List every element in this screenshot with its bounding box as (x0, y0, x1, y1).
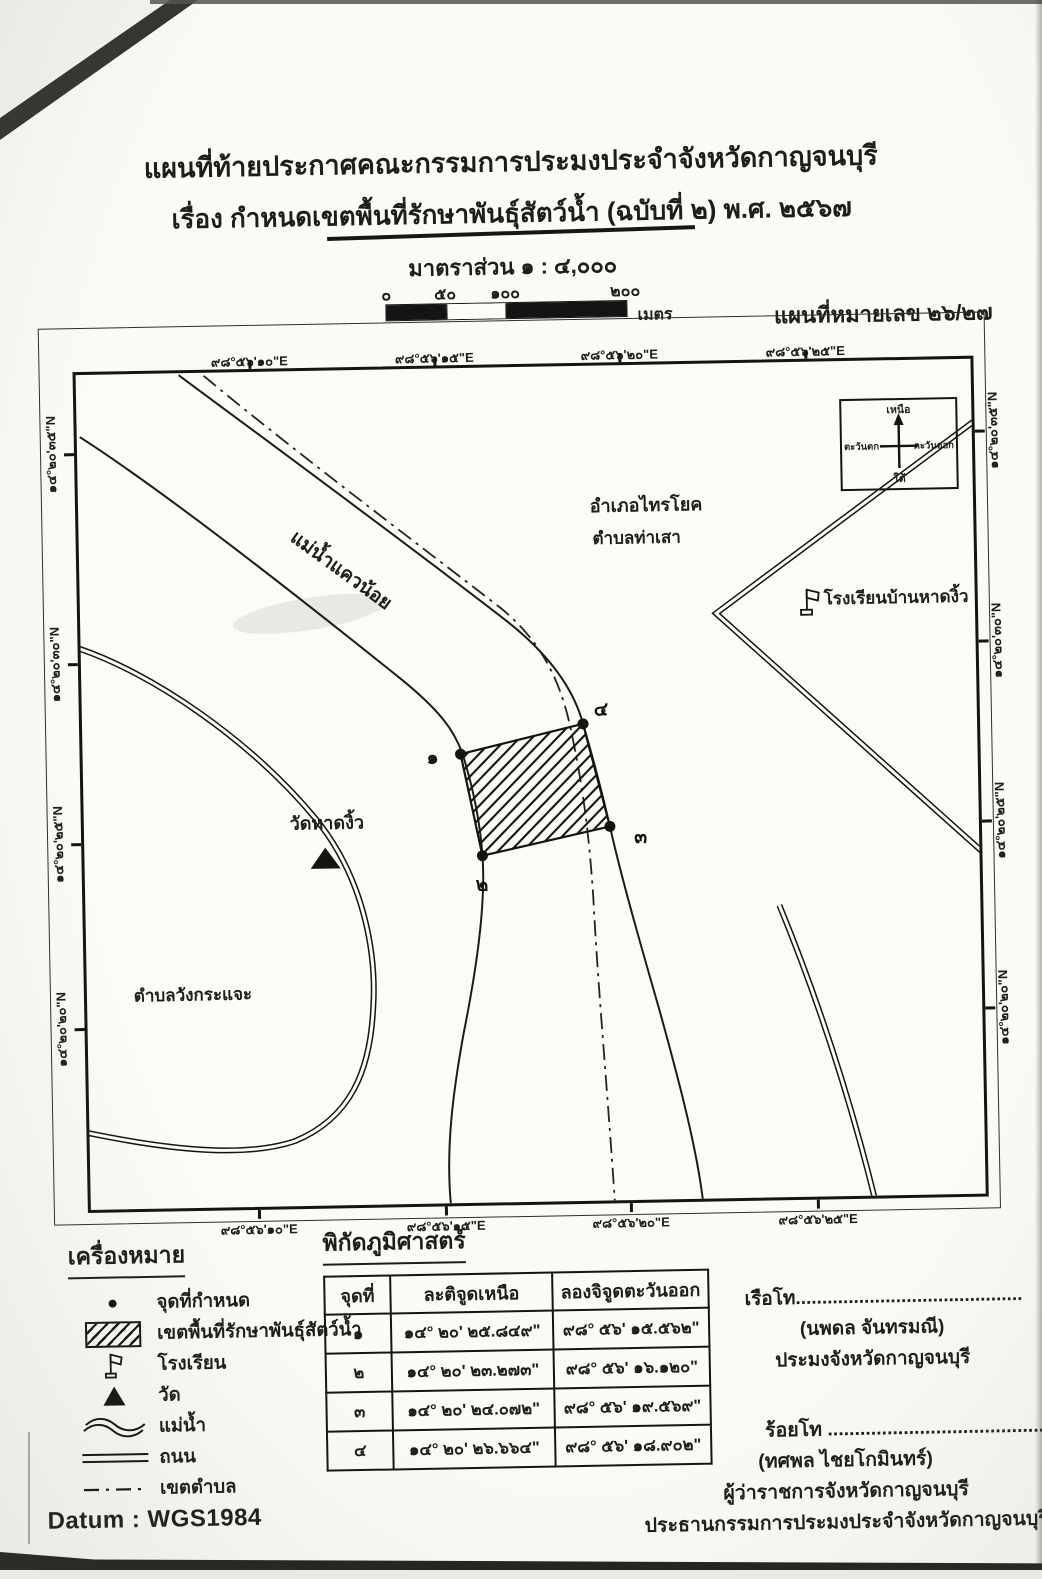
compass-north-label: เหนือ (886, 401, 910, 418)
tick-top-1 (248, 360, 251, 369)
title-block: แผนที่ท้ายประกาศคณะกรรมการประมงประจำจังห… (0, 131, 1033, 244)
signature-title: ประมงจังหวัดกาญจนบุรี (711, 1341, 1034, 1378)
subdistrict-wang-label: ตำบลวังกระแจะ (134, 980, 253, 1009)
col-header-lon: ลองจิจูดตะวันออก (552, 1270, 709, 1311)
coord-label-left-3: ๑๔°๒๐'๒๕"N (47, 806, 69, 883)
cell-point: ๔ (327, 1430, 394, 1470)
scan-edge-top (150, 0, 1042, 4)
cell-lat: ๑๔° ๒๐' ๒๔.๐๗๒" (392, 1389, 555, 1431)
legend-item-school: โรงเรียน (69, 1345, 340, 1381)
legend: เครื่องหมาย จุดที่กำหนด เขตพื้นที่รักษาพ… (67, 1234, 342, 1505)
legend-item-label: วัด (158, 1380, 181, 1409)
temple-triangle-icon (103, 1386, 125, 1405)
col-header-point: จุดที่ (324, 1275, 391, 1314)
compass-south-label: ใต้ (893, 470, 905, 487)
hatched-area-icon (85, 1321, 141, 1348)
legend-item-temple: วัด (70, 1376, 341, 1412)
school-label: โรงเรียนบ้านหาดงิ้ว (824, 583, 969, 613)
scanned-page: แผนที่ท้ายประกาศคณะกรรมการประมงประจำจังห… (0, 0, 1042, 1570)
tick-right-1 (975, 429, 985, 432)
cell-lat: ๑๔° ๒๐' ๒๖.๖๖๔" (393, 1427, 556, 1469)
legend-item-boundary: เขตตำบล (72, 1469, 343, 1505)
signature-block-governor: ร้อยโท .................................… (635, 1410, 1042, 1542)
coord-label-right-1: ๑๔°๒๐'๓๕"N (982, 392, 1004, 470)
cell-point: ๑ (325, 1313, 392, 1353)
tick-left-4 (75, 1028, 85, 1031)
legend-item-river: แม่น้ำ (71, 1407, 342, 1443)
scan-paper-edge-line (28, 1432, 30, 1544)
signature-dotted-line: ........................................… (827, 1414, 1042, 1440)
tick-bottom-4 (817, 1200, 820, 1209)
map-inner-frame: ๑ ๒ ๓ ๔ อำเภอไทรโยค ตำบลท่าเสา (73, 356, 989, 1213)
tick-top-3 (618, 353, 621, 362)
legend-item-road: ถนน (71, 1438, 342, 1474)
coord-label-bottom-4: ๙๘°๕๖'๒๕"E (778, 1208, 858, 1230)
signature-dotted-line: ........................................… (795, 1284, 1022, 1309)
tick-right-4 (985, 1006, 995, 1009)
legend-item-protected-area: เขตพื้นที่รักษาพันธุ์สัตว์น้ำ (69, 1314, 340, 1350)
coord-label-left-4: ๑๔°๒๐'๒๐"N (50, 992, 72, 1067)
signature-rank: ร้อยโท (765, 1419, 828, 1442)
point-1-label: ๑ (426, 748, 438, 769)
title-line-1: แผนที่ท้ายประกาศคณะกรรมการประมงประจำจังห… (0, 131, 1032, 193)
legend-item-label: ถนน (159, 1442, 196, 1472)
district-label: อำเภอไทรโยค (589, 489, 702, 520)
school-flag-icon (801, 590, 819, 615)
tick-bottom-1 (258, 1210, 261, 1219)
coord-label-right-2: ๑๔°๒๐'๓๐"N (985, 602, 1007, 678)
legend-heading: เครื่องหมาย (67, 1237, 185, 1279)
tick-top-4 (804, 350, 807, 359)
cell-point: ๒ (326, 1352, 393, 1392)
compass-west-label: ตะวันตก (844, 439, 879, 455)
signature-block-fisheries: เรือโท..................................… (710, 1279, 1034, 1378)
point-2-label: ๒ (476, 875, 489, 896)
cell-lon: ๙๘° ๕๖' ๑๕.๕๖๒" (553, 1308, 710, 1350)
tick-top-2 (433, 357, 436, 366)
datum-label: Datum : WGS1984 (47, 1504, 262, 1536)
point-dot-icon (109, 1299, 117, 1307)
point-4-label: ๔ (594, 699, 609, 720)
tick-left-2 (68, 663, 78, 666)
coord-label-left-1: ๑๔°๒๐'๓๕"N (40, 416, 62, 494)
cell-lat: ๑๔° ๒๐' ๒๓.๒๗๓" (392, 1350, 555, 1392)
river-waves-icon (81, 1414, 149, 1439)
subdistrict-thasao-label: ตำบลท่าเสา (592, 524, 681, 553)
scan-edge-right (1035, 0, 1042, 1570)
tick-left-1 (64, 453, 74, 456)
tick-right-3 (982, 819, 992, 822)
scale-bar-segment-black-2 (506, 301, 626, 318)
tick-bottom-2 (445, 1206, 448, 1215)
cell-point: ๓ (326, 1391, 393, 1431)
signature-rank: เรือโท (744, 1288, 795, 1310)
coord-label-right-3: ๑๔°๒๐'๒๕"N (989, 782, 1011, 859)
cell-lat: ๑๔° ๒๐' ๒๕.๘๔๙" (391, 1311, 554, 1353)
col-header-lat: ละติจูดเหนือ (390, 1273, 553, 1314)
tick-right-2 (979, 639, 989, 642)
coord-label-right-4: ๑๔°๒๐'๒๐"N (992, 970, 1014, 1045)
tick-bottom-3 (630, 1203, 633, 1212)
legend-item-label: โรงเรียน (157, 1349, 226, 1379)
scale-bar-segment-white (446, 303, 506, 319)
road-double-line-icon (82, 1453, 148, 1463)
scale-bar-segment-black-1 (386, 304, 446, 320)
compass-rose: เหนือ ใต้ ตะวันตก ตะวันออก (839, 397, 959, 491)
school-flag-icon (102, 1351, 124, 1378)
point-3-label: ๓ (634, 827, 647, 848)
road-right-lower (779, 904, 874, 1201)
compass-east-label: ตะวันออก (914, 438, 955, 454)
map-outer-frame: ๙๘°๕๖'๑๐"E ๙๘°๕๖'๑๕"E ๙๘°๕๖'๒๐"E ๙๘°๕๖'๒… (38, 311, 1001, 1225)
legend-item-label: แม่น้ำ (159, 1411, 207, 1441)
document-sheet: แผนที่ท้ายประกาศคณะกรรมการประมงประจำจังห… (0, 0, 1042, 1579)
coord-label-left-2: ๑๔°๒๐'๓๐"N (44, 627, 66, 703)
temple-label: วัดหาดงิ้ว (289, 807, 364, 837)
tick-left-3 (71, 843, 81, 846)
road-left (76, 642, 377, 1153)
cell-lon: ๙๘° ๕๖' ๑๖.๑๒๐" (554, 1347, 711, 1389)
signature-title: ประธานกรรมการประมงประจำจังหวัดกาญจนบุรี (636, 1503, 1042, 1542)
boundary-dash-dot-icon (82, 1484, 150, 1493)
coordinates-heading: พิกัดภูมิศาสตร์ (322, 1223, 466, 1266)
legend-item-label: เขตตำบล (160, 1472, 237, 1502)
legend-item-point: จุดที่กำหนด (68, 1283, 339, 1319)
legend-item-label: จุดที่กำหนด (156, 1286, 250, 1317)
